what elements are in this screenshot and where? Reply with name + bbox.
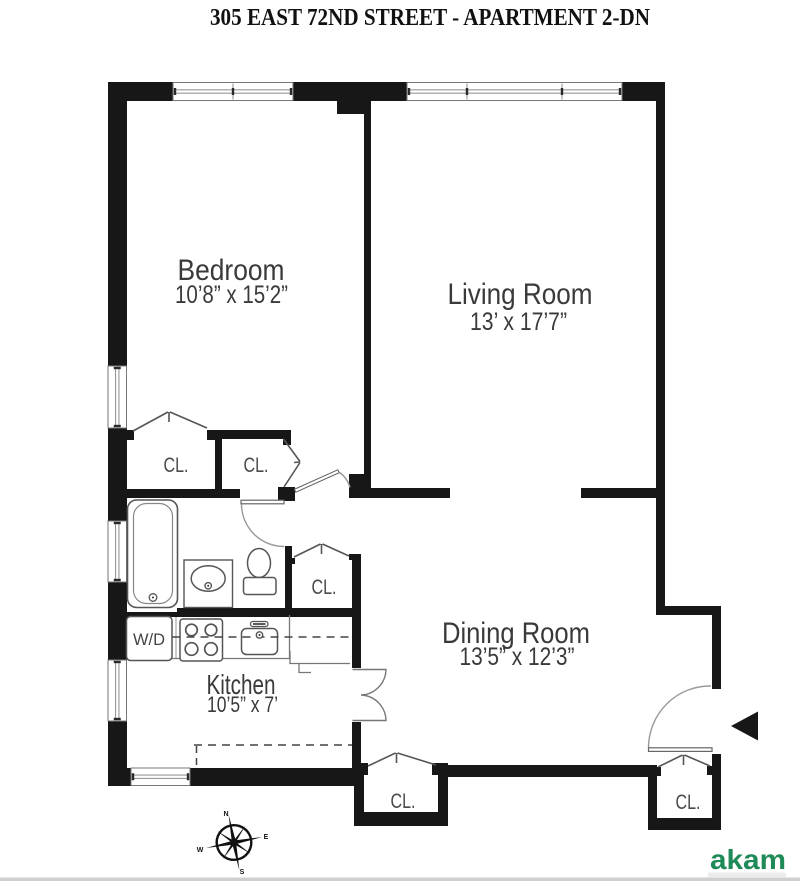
- svg-text:S: S: [240, 869, 245, 876]
- svg-text:W/D: W/D: [133, 630, 165, 649]
- svg-text:E: E: [264, 834, 269, 841]
- svg-text:13’ x 17’7”: 13’ x 17’7”: [470, 308, 567, 336]
- svg-text:305 EAST 72ND STREET - APARTME: 305 EAST 72ND STREET - APARTMENT 2-DN: [210, 5, 651, 31]
- svg-text:Living Room: Living Room: [448, 278, 593, 311]
- svg-text:13’5” x 12’3”: 13’5” x 12’3”: [460, 643, 575, 671]
- svg-text:10’5” x 7’: 10’5” x 7’: [207, 692, 278, 717]
- svg-text:akam: akam: [710, 844, 786, 875]
- svg-text:CL.: CL.: [391, 790, 416, 813]
- svg-text:W: W: [197, 847, 204, 854]
- svg-text:CL.: CL.: [312, 576, 337, 599]
- svg-text:CL.: CL.: [164, 454, 189, 477]
- svg-text:N: N: [223, 811, 228, 818]
- svg-text:CL.: CL.: [676, 791, 701, 814]
- svg-text:CL.: CL.: [244, 454, 269, 477]
- svg-text:10’8” x 15’2”: 10’8” x 15’2”: [175, 281, 288, 309]
